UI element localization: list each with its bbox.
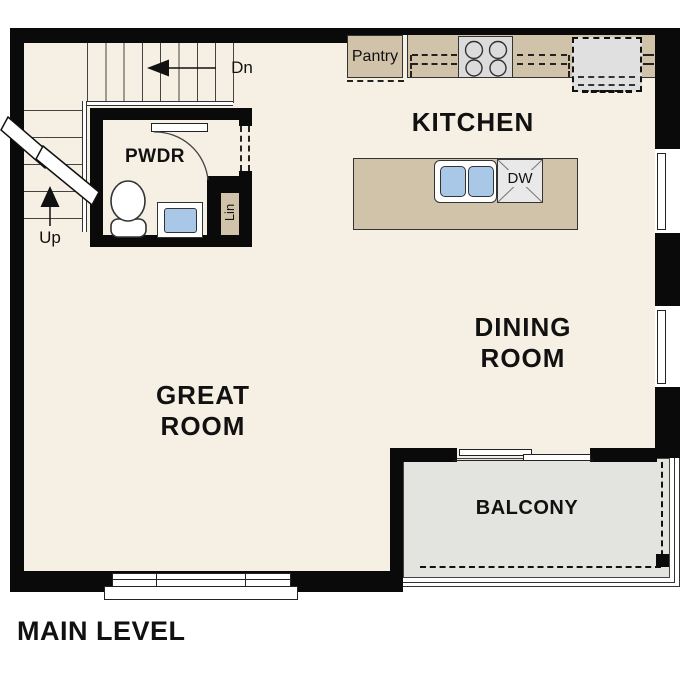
exterior-wall-right — [655, 28, 680, 458]
exterior-wall-top-left — [10, 28, 347, 43]
stairs-down-run — [87, 43, 234, 103]
stair-railing-horizontal — [82, 101, 233, 106]
upper-cabinet-dashes — [643, 63, 654, 65]
dining-room-label: DININGROOM — [423, 312, 623, 374]
cased-opening-dashed — [248, 126, 250, 171]
balcony-dashed-line-vertical — [661, 462, 663, 566]
exterior-wall-left — [10, 28, 24, 592]
powder-room-wall-top — [90, 108, 252, 120]
balcony-post — [656, 554, 669, 567]
powder-room-wall-right-lower — [239, 171, 252, 247]
balcony-label: BALCONY — [427, 497, 627, 520]
dishwasher-label: DW — [497, 170, 543, 187]
upper-cabinet-dashes — [643, 54, 654, 56]
island-sink-basin — [440, 166, 466, 197]
sliding-door-panel — [523, 454, 591, 461]
stair-railing-vertical — [82, 101, 87, 232]
balcony-wall-left — [390, 448, 403, 592]
stairs-up-label: Up — [30, 228, 70, 248]
powder-sink-basin — [164, 208, 197, 233]
refrigerator-dash — [578, 84, 635, 86]
balcony-dashed-line-horizontal — [420, 566, 661, 568]
stairs-up-run — [24, 110, 82, 232]
great-room-window-mullion — [245, 573, 246, 587]
refrigerator-dash — [582, 90, 632, 93]
page-title: MAIN LEVEL — [17, 616, 317, 647]
stairs-down-label: Dn — [222, 58, 262, 78]
great-room-window-sill — [104, 586, 298, 600]
cased-opening-dashed — [240, 126, 242, 171]
powder-room-wall-left — [90, 108, 103, 247]
sliding-door-panel — [459, 449, 532, 456]
upper-cabinet-dashes — [412, 63, 457, 65]
refrigerator-dash — [578, 76, 635, 78]
upper-cabinet-dashes — [517, 63, 567, 65]
upper-cabinet-dashes — [412, 54, 457, 56]
powder-room-door — [151, 123, 208, 132]
powder-room-label: PWDR — [103, 146, 207, 168]
upper-cabinet-dash-tick — [410, 55, 412, 77]
great-room-window-mullion — [156, 573, 157, 587]
pantry-label: Pantry — [347, 48, 403, 66]
great-room-window-midline — [112, 579, 291, 580]
window-right-lower-pane — [657, 310, 666, 384]
linen-closet-label: Lin — [219, 191, 240, 235]
window-right-upper-pane — [657, 153, 666, 230]
range-stove — [458, 36, 513, 78]
great-room-label: GREATROOM — [103, 380, 303, 442]
powder-room-wall-right-upper — [239, 108, 252, 126]
upper-cabinet-dashes — [517, 54, 567, 56]
dining-balcony-wall-right — [590, 448, 657, 462]
island-sink-basin — [468, 166, 494, 197]
exterior-wall-top-right — [347, 28, 680, 35]
great-room-floor — [24, 450, 390, 571]
pantry-front-dashed — [347, 80, 404, 82]
floor-plan: KITCHEN DININGROOM GREATROOM BALCONY PWD… — [0, 0, 687, 687]
kitchen-label: KITCHEN — [373, 107, 573, 138]
upper-cabinet-dash-tick — [568, 55, 570, 77]
great-room-window — [112, 573, 291, 587]
